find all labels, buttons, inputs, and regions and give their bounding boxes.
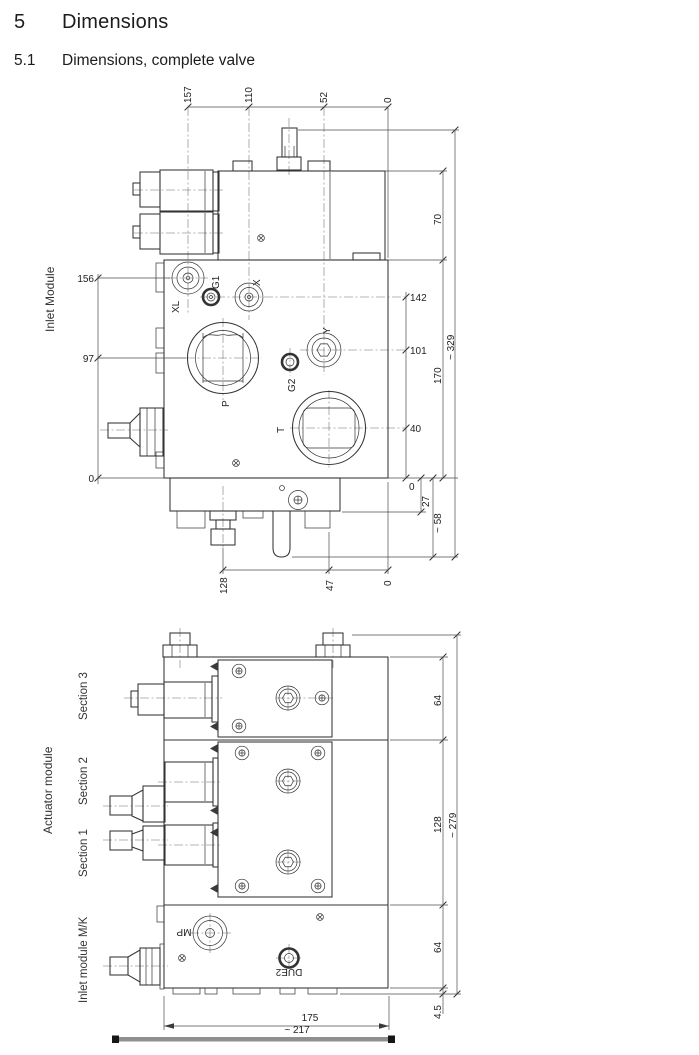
- dim-label: 0: [88, 474, 94, 485]
- actuator-valve-body: [110, 633, 388, 994]
- section21-plate: [210, 742, 332, 897]
- inlet-module-drawing: 157 110 52 0 156 97 0 142 101 40 0 70 17…: [43, 86, 459, 594]
- section1-label: Section 1: [78, 829, 90, 877]
- port-label-x: X: [252, 279, 263, 286]
- actuator-module-drawing: 64 128 ~ 279 64 4.5 175 ~ 217 MP DUE2 Ac…: [41, 628, 461, 1043]
- dim-label: 0: [383, 97, 394, 103]
- inlet-module-label: Inlet Module: [43, 266, 57, 332]
- dim-label: ~ 58: [433, 513, 444, 533]
- dim-label: 175: [302, 1013, 319, 1024]
- plate-screw: [235, 879, 249, 893]
- dim-label: 157: [183, 86, 194, 103]
- section3-plate: [210, 660, 332, 737]
- dim-label: 101: [410, 346, 427, 357]
- dim-label: 128: [433, 816, 444, 833]
- actuator-dimension-labels: 64 128 ~ 279 64 4.5 175 ~ 217: [284, 694, 459, 1036]
- actuator-module-label: Actuator module: [41, 746, 55, 834]
- drain-screw-icon: [233, 460, 240, 467]
- base-plate: [112, 1036, 395, 1044]
- port-label-g1: G1: [211, 275, 222, 289]
- port-label-g2: G2: [287, 378, 298, 392]
- dim-label: 52: [319, 91, 330, 103]
- inlet-dimension-labels: 157 110 52 0 156 97 0 142 101 40 0 70 17…: [77, 86, 457, 594]
- dim-label: 170: [433, 367, 444, 384]
- dim-label: 40: [410, 424, 422, 435]
- dim-label: 0: [409, 482, 415, 493]
- inlet-centerlines: [100, 107, 406, 548]
- inlet-lower-block: [170, 478, 340, 557]
- plate-screw: [235, 746, 249, 760]
- port-label-t: T: [276, 427, 287, 433]
- plate-screw: [232, 664, 246, 678]
- dim-label: 70: [433, 213, 444, 225]
- dim-label: 156: [77, 274, 94, 285]
- port-label-p: P: [221, 400, 232, 407]
- section3-label: Section 3: [78, 672, 90, 720]
- dim-label: 27: [421, 495, 432, 507]
- inlet-ports: [172, 235, 366, 467]
- dim-label: 142: [410, 293, 427, 304]
- solenoid-section3: [131, 676, 218, 722]
- actuator-centerlines: [103, 628, 335, 972]
- dim-label: 110: [244, 87, 255, 103]
- section2-label: Section 2: [78, 757, 90, 805]
- mounting-feet: [173, 988, 337, 994]
- plate-screw: [311, 879, 325, 893]
- dim-label: 4.5: [433, 1005, 444, 1019]
- inlet-mk-label: Inlet module M/K: [78, 916, 90, 1003]
- dim-label: ~ 217: [284, 1025, 310, 1036]
- drain-screw-icon: [258, 235, 265, 242]
- dimension-drawings: 157 110 52 0 156 97 0 142 101 40 0 70 17…: [0, 0, 699, 1055]
- dim-label: 64: [433, 941, 444, 953]
- dim-label: 47: [325, 579, 336, 591]
- manual-page: 5Dimensions 5.1Dimensions, complete valv…: [0, 0, 699, 1055]
- drain-screw-icon: [317, 914, 324, 921]
- plate-screw: [232, 719, 246, 733]
- port-label-xl: XL: [171, 300, 182, 313]
- dim-label: 64: [433, 694, 444, 706]
- relief-valve: [108, 408, 163, 456]
- actuator-dimension-lines: [164, 632, 461, 1030]
- dim-label: ~ 279: [448, 812, 459, 838]
- port-label-mp: MP: [176, 926, 191, 937]
- pilot-solenoid-1: [133, 170, 219, 211]
- port-label-due2: DUE2: [275, 966, 302, 977]
- dim-label: ~ 329: [446, 334, 457, 360]
- mk-relief-valve: [110, 944, 164, 989]
- dim-label: 97: [83, 354, 95, 365]
- port-label-y: Y: [322, 327, 333, 334]
- inlet-port-labels: XL G1 X Y G2 P T: [171, 275, 333, 433]
- dim-label: 0: [383, 580, 394, 586]
- drain-screw-icon: [179, 955, 186, 962]
- inlet-valve-body: [108, 128, 388, 557]
- inlet-dimension-lines: [95, 104, 459, 574]
- plate-screw: [311, 746, 325, 760]
- dim-label: 128: [219, 577, 230, 594]
- actuator-hardware: [179, 664, 329, 967]
